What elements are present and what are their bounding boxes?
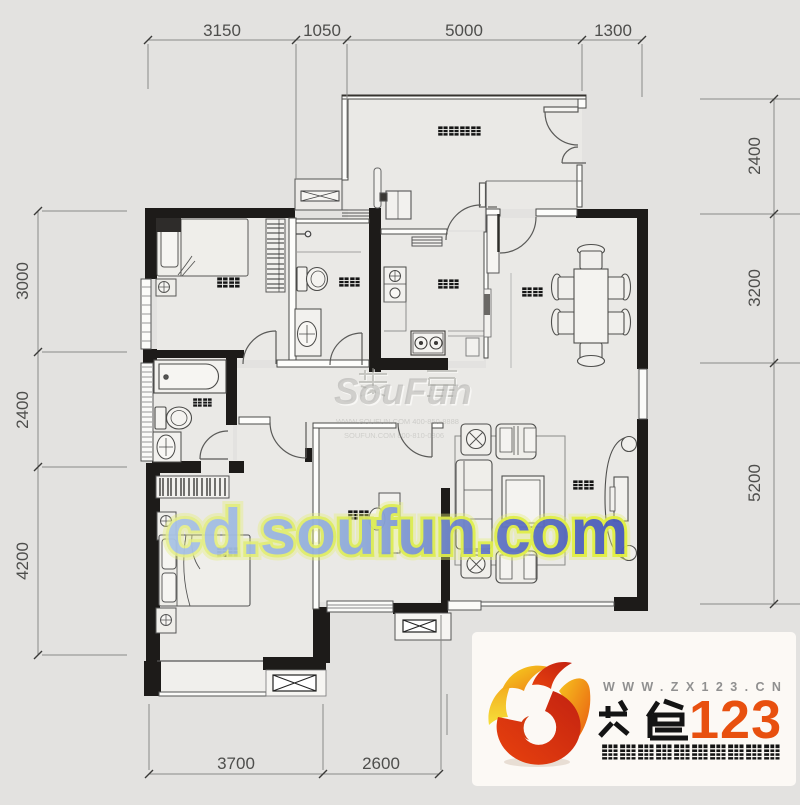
svg-text:1300: 1300	[594, 21, 632, 40]
svg-text:123: 123	[689, 690, 782, 750]
svg-text:2600: 2600	[362, 754, 400, 773]
svg-text:2400: 2400	[745, 137, 764, 175]
svg-text:2400: 2400	[13, 391, 32, 429]
svg-text:3150: 3150	[203, 21, 241, 40]
svg-text:cd.soufun.com: cd.soufun.com	[166, 495, 628, 568]
svg-text:5200: 5200	[745, 464, 764, 502]
svg-text:WWW.SOUFUN.COM 400-850-8888: WWW.SOUFUN.COM 400-850-8888	[336, 417, 459, 426]
svg-text:SouFun: SouFun	[334, 371, 472, 412]
svg-text:5000: 5000	[445, 21, 483, 40]
svg-text:3700: 3700	[217, 754, 255, 773]
svg-text:4200: 4200	[13, 542, 32, 580]
svg-text:3000: 3000	[13, 262, 32, 300]
svg-text:SOUFUN.COM 800-810-0806: SOUFUN.COM 800-810-0806	[344, 431, 444, 440]
svg-text:1050: 1050	[303, 21, 341, 40]
svg-text:3200: 3200	[745, 269, 764, 307]
